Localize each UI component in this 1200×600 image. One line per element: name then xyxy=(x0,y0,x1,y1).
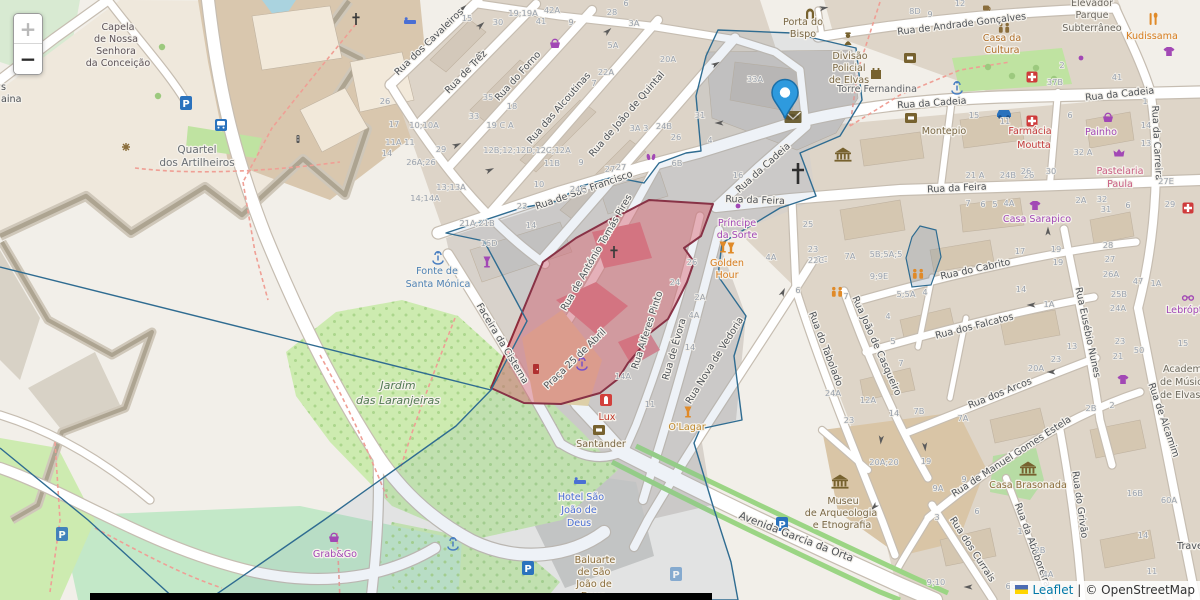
housenumber-label: 9A xyxy=(933,483,944,493)
housenumber-label: 21 xyxy=(1113,351,1124,361)
housenumber-label: 14 xyxy=(526,220,537,230)
map-label: Parque xyxy=(1075,10,1108,21)
housenumber-label: 24C xyxy=(570,184,587,194)
housenumber-label: 14;14A xyxy=(410,193,440,203)
housenumber-label: 11 xyxy=(645,399,656,409)
zoom-control: + − xyxy=(13,13,43,75)
map-label: Jardim xyxy=(378,379,415,392)
map-label: Quartel xyxy=(177,144,216,156)
map-label: Kudissama xyxy=(1126,31,1178,42)
housenumber-label: 23 xyxy=(844,415,855,425)
housenumber-label: 33 xyxy=(469,111,480,121)
asterisk-icon xyxy=(122,143,130,151)
housenumber-label: 29 xyxy=(436,144,447,154)
housenumber-label: 47 xyxy=(1133,276,1144,286)
housenumber-label: 3A 3 xyxy=(630,123,649,133)
map-label: Casa Sarapico xyxy=(1003,214,1071,225)
housenumber-label: 3A xyxy=(629,18,640,28)
map-label: de Arqueologia xyxy=(805,508,878,519)
housenumber-label: 1A xyxy=(1151,278,1162,288)
housenumber-label: 14 xyxy=(889,408,900,418)
attribution-bar: Leaflet | © OpenStreetMap xyxy=(1010,581,1200,600)
housenumber-label: 27 xyxy=(605,164,616,174)
housenumber-label: 37B xyxy=(1047,77,1064,87)
housenumber-label: 23 xyxy=(808,244,819,254)
housenumber-label: 1 xyxy=(1142,96,1147,106)
housenumber-label: 33A xyxy=(747,74,764,84)
housenumber-label: 41 xyxy=(1112,72,1123,82)
map-label: Grab&Go xyxy=(313,549,357,560)
housenumber-label: 10;10A xyxy=(409,120,439,130)
housenumber-label: 31 xyxy=(695,110,706,120)
pharmacy-icon xyxy=(1027,116,1038,127)
housenumber-label: 20A xyxy=(660,54,677,64)
housenumber-label: 14 xyxy=(1138,530,1149,540)
zoom-in-button[interactable]: + xyxy=(14,14,42,44)
door-icon xyxy=(533,364,539,374)
housenumber-label: 2 xyxy=(1109,400,1114,410)
map-viewport[interactable]: PPPPPRua dos CavaleirosRua de TrêzRua do… xyxy=(0,0,1200,600)
osm-attribution: © OpenStreetMap xyxy=(1085,583,1195,597)
housenumber-label: 20A xyxy=(1028,363,1045,373)
map-label: Montepio xyxy=(922,126,967,137)
housenumber-label: 27 xyxy=(616,162,627,172)
housenumber-label: 9 xyxy=(961,474,966,484)
map-label: Hour xyxy=(715,270,738,281)
housenumber-label: 13 xyxy=(1141,138,1152,148)
tree-icon xyxy=(1009,73,1015,79)
housenumber-label: 7A xyxy=(845,251,856,261)
bus-icon xyxy=(215,119,227,131)
housenumber-label: 12A xyxy=(860,395,877,405)
map-label: de Música xyxy=(1160,376,1200,388)
housenumber-label: 22A xyxy=(598,67,615,77)
map-label: Deus xyxy=(567,518,591,529)
tower-icon xyxy=(871,68,881,79)
housenumber-label: 23 xyxy=(517,201,528,211)
housenumber-label: 5 xyxy=(890,336,895,346)
map-label: Casa da xyxy=(983,33,1021,44)
housenumber-label: 24A xyxy=(825,388,842,398)
housenumber-label: 28 xyxy=(607,7,618,17)
housenumber-label: 21 A xyxy=(966,170,985,180)
housenumber-label: 14A xyxy=(615,371,632,381)
map-label: Hotel São xyxy=(558,492,604,503)
housenumber-label: 11B xyxy=(544,158,561,168)
housenumber-label: 4A xyxy=(1004,198,1015,208)
map-label: Golden xyxy=(710,258,744,269)
map-label: Lebróptica xyxy=(1166,304,1200,316)
svg-text:P: P xyxy=(182,99,189,110)
parking-icon: P xyxy=(180,96,192,110)
housenumber-label: 32 A xyxy=(1074,147,1093,157)
map-label: Rua da Feira xyxy=(725,194,785,207)
bottom-black-bar xyxy=(90,593,712,600)
housenumber-label: 26A xyxy=(1103,269,1120,279)
map-label: aina xyxy=(1,94,22,105)
housenumber-label: 7B xyxy=(914,406,925,416)
housenumber-label: 14 xyxy=(1141,120,1152,130)
housenumber-label: 27E xyxy=(1158,176,1174,186)
housenumber-label: 30 xyxy=(493,17,504,27)
housenumber-label: 15 xyxy=(462,13,473,23)
tree-icon xyxy=(985,64,991,70)
map-label: de Elvas xyxy=(1160,390,1200,401)
housenumber-label: 28 xyxy=(1103,240,1114,250)
housenumber-label: 6 xyxy=(1067,110,1072,120)
housenumber-label: 6 xyxy=(623,0,628,8)
housenumber-label: 11A 11 xyxy=(385,137,414,147)
housenumber-label: 16D xyxy=(481,238,498,248)
housenumber-label: 24B xyxy=(656,121,673,131)
housenumber-label: 9;9E xyxy=(870,271,889,281)
housenumber-label: 19 xyxy=(921,456,932,466)
map-label: s xyxy=(1,82,6,93)
housenumber-label: 14 xyxy=(1016,284,1027,294)
lux-icon xyxy=(600,394,612,406)
housenumber-label: 1 xyxy=(1017,526,1022,536)
leaflet-link[interactable]: Leaflet xyxy=(1032,583,1073,597)
map-label: Moutta xyxy=(1017,140,1051,151)
housenumber-label: 18 xyxy=(507,101,518,111)
map-label: da Sorte xyxy=(717,230,758,241)
map-label: Museu xyxy=(827,496,858,507)
map-label: Santa Mónica xyxy=(406,278,471,290)
dot-icon xyxy=(1079,56,1084,61)
cutlery-icon xyxy=(1150,13,1158,25)
tree-icon xyxy=(1033,65,1039,71)
housenumber-label: 7 xyxy=(591,78,596,88)
housenumber-label: 10 xyxy=(534,179,545,189)
housenumber-label: 4A xyxy=(689,310,700,320)
housenumber-label: 30 xyxy=(1046,166,1057,176)
housenumber-label: 12B;12;12D;12C;12A xyxy=(483,145,571,155)
svg-text:P: P xyxy=(524,564,531,575)
map-label: João de xyxy=(575,579,612,590)
bank-icon xyxy=(905,113,917,123)
housenumber-label: 9 xyxy=(568,17,573,27)
map-label: Paula xyxy=(1107,179,1133,190)
housenumber-label: 35 xyxy=(483,92,494,102)
housenumber-label: 23 xyxy=(1115,336,1126,346)
tree-icon xyxy=(155,93,161,99)
housenumber-label: 25B xyxy=(1111,289,1128,299)
map-label: O'Lagar xyxy=(668,422,705,433)
housenumber-label: 2A xyxy=(695,292,706,302)
housenumber-label: 12 xyxy=(955,0,966,8)
housenumber-label: 11 xyxy=(1147,566,1158,576)
housenumber-label: 5;5A xyxy=(896,289,915,299)
housenumber-label: 7 xyxy=(965,198,970,208)
housenumber-label: 24A xyxy=(1110,303,1127,313)
housenumber-label: 16 xyxy=(733,170,744,180)
housenumber-label: 26 xyxy=(687,257,698,267)
housenumber-label: 5A xyxy=(608,40,619,50)
parking-icon: P xyxy=(56,527,68,541)
map-label: de Nossa xyxy=(94,34,138,45)
zoom-out-button[interactable]: − xyxy=(14,44,42,74)
map-label: Pastelaria xyxy=(1097,166,1144,177)
map-label: Porta do xyxy=(783,17,823,28)
housenumber-label: 14 xyxy=(685,342,696,352)
parking-icon: P xyxy=(522,561,534,575)
housenumber-label: 19 xyxy=(1051,244,1062,254)
map-label: Subterrâneo xyxy=(1062,22,1122,34)
housenumber-label: 32 xyxy=(1097,194,1108,204)
map-label: dos Artilheiros xyxy=(159,157,234,169)
map-label: Bispo xyxy=(790,29,816,40)
housenumber-label: 2B xyxy=(1086,403,1097,413)
map-label: Fonte de xyxy=(416,266,458,277)
map-label: Divisão xyxy=(832,51,867,62)
housenumber-label: 8D xyxy=(909,6,921,16)
housenumber-label: 22C xyxy=(808,255,825,265)
svg-text:P: P xyxy=(672,570,679,581)
housenumber-label: 17 xyxy=(1015,246,1026,256)
housenumber-label: 9 xyxy=(927,9,932,19)
map-label: Farmácia xyxy=(1008,125,1051,137)
map-label: Academia xyxy=(1163,364,1200,375)
housenumber-label: 6 xyxy=(974,506,979,516)
housenumber-label: 9;10 xyxy=(927,577,946,587)
housenumber-label: 24B xyxy=(1000,170,1017,180)
housenumber-label: 4A xyxy=(1043,569,1054,579)
housenumber-label: 2 xyxy=(1059,60,1064,70)
housenumber-label: 4A xyxy=(766,252,777,262)
attribution-separator: | xyxy=(1077,583,1081,597)
housenumber-label: 17 xyxy=(389,119,400,129)
tree-icon xyxy=(159,44,165,50)
housenumber-label: 31 xyxy=(1101,204,1112,214)
housenumber-label: 19 xyxy=(1053,257,1064,267)
map-label: Baluarte xyxy=(575,555,616,566)
map-label: Painho xyxy=(1085,127,1117,138)
ukraine-flag-icon xyxy=(1015,585,1028,594)
housenumber-label: 23 xyxy=(1051,354,1062,364)
map-label: Lux xyxy=(599,412,616,423)
map-label: Travessa d xyxy=(1176,541,1200,552)
map-label: Torre Fernandina xyxy=(836,84,917,95)
svg-text:P: P xyxy=(58,530,65,541)
housenumber-label: 15 xyxy=(969,110,980,120)
housenumber-label: 26A;26 xyxy=(406,157,436,167)
pharmacy-icon xyxy=(1183,203,1194,214)
map-label: Elevador xyxy=(1071,0,1113,9)
bank-icon xyxy=(904,53,916,63)
housenumber-label: 4 xyxy=(707,135,712,145)
housenumber-label: 6B xyxy=(672,158,683,168)
map-label: de São xyxy=(578,567,611,578)
housenumber-label: 19 C A xyxy=(486,120,514,130)
housenumber-label: 26 xyxy=(1021,166,1032,176)
housenumber-label: 1A xyxy=(1044,299,1055,309)
map-label: Príncipe xyxy=(718,217,756,229)
traffic-icon xyxy=(297,135,300,143)
housenumber-label: 29 xyxy=(1165,199,1176,209)
housenumber-label: 21A;21B xyxy=(459,218,495,228)
housenumber-label: 5 xyxy=(992,199,997,209)
housenumber-label: 2A xyxy=(1076,195,1087,205)
housenumber-label: 24 xyxy=(670,277,681,287)
map-label: Casa Brasonada xyxy=(989,480,1067,491)
housenumber-label: 13;13A xyxy=(436,182,466,192)
housenumber-label: 4 xyxy=(922,287,927,297)
housenumber-label: 9 xyxy=(578,157,583,167)
housenumber-label: 4 xyxy=(885,311,890,321)
housenumber-label: 6 xyxy=(1125,200,1130,210)
map-label: e Etnografia xyxy=(813,520,872,531)
bank-icon xyxy=(593,425,605,435)
parking-icon: P xyxy=(670,567,682,581)
housenumber-label: 16B xyxy=(1127,488,1144,498)
housenumber-label: 2B xyxy=(1035,545,1046,555)
map-label: Senhora xyxy=(96,46,136,57)
map-label: Cultura xyxy=(984,45,1019,56)
housenumber-label: 27 xyxy=(1105,254,1116,264)
housenumber-label: 60A xyxy=(1161,495,1178,505)
housenumber-label: 15 xyxy=(1178,338,1189,348)
housenumber-label: 7A xyxy=(958,413,969,423)
housenumber-label: 6 xyxy=(980,199,985,209)
housenumber-label: 5B;5A;5 xyxy=(870,249,903,259)
housenumber-label: 6 xyxy=(795,285,800,295)
housenumber-label: 19;19A xyxy=(508,8,538,18)
housenumber-label: 13 xyxy=(1067,341,1078,351)
shirt-icon xyxy=(1164,47,1175,56)
map-label: Capela xyxy=(101,22,134,33)
fountain-icon xyxy=(433,251,443,264)
housenumber-label: 26 xyxy=(671,132,682,142)
map-canvas[interactable]: PPPPPRua dos CavaleirosRua de TrêzRua do… xyxy=(0,0,1200,600)
housenumber-label: 14 xyxy=(382,148,393,158)
housenumber-label: 20A;20 xyxy=(869,457,899,467)
housenumber-label: 42A xyxy=(544,5,561,15)
housenumber-label: 26 xyxy=(380,96,391,106)
map-label: Policial xyxy=(832,63,865,74)
housenumber-label: 7 xyxy=(898,358,903,368)
housenumber-label: 25 xyxy=(803,219,814,229)
pharmacy-icon xyxy=(1027,72,1038,83)
housenumber-label: 3 xyxy=(934,512,939,522)
housenumber-label: 7 xyxy=(843,291,848,301)
housenumber-label: 50 xyxy=(1134,345,1145,355)
housenumber-label: 11 xyxy=(1000,116,1011,126)
map-label: da Conceição xyxy=(86,58,151,69)
map-label: João de xyxy=(560,505,597,516)
drink-icon xyxy=(728,243,735,254)
map-label: Santander xyxy=(576,439,626,450)
map-label: das Laranjeiras xyxy=(356,394,440,407)
